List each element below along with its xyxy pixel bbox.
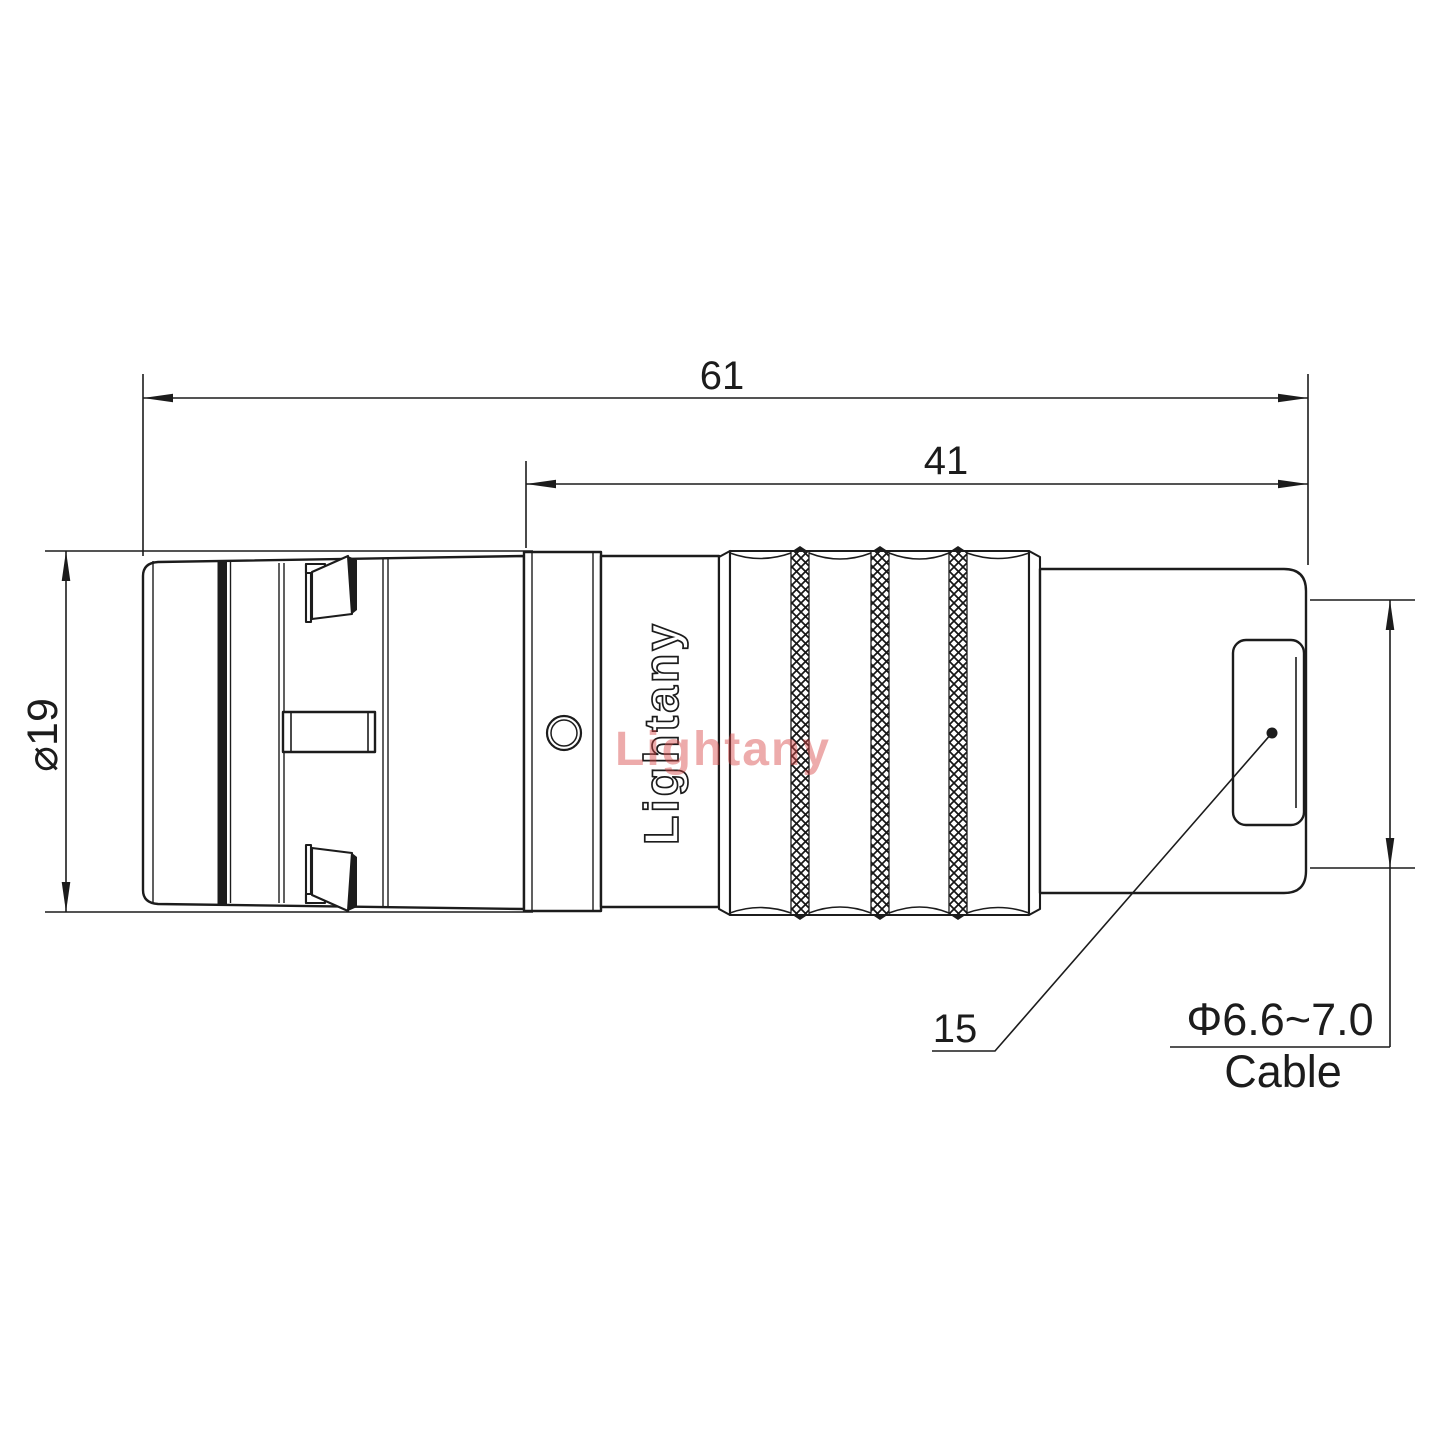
cable-range-value: Φ6.6~7.0 bbox=[1186, 994, 1373, 1045]
knurl-band-2 bbox=[871, 546, 889, 920]
cable-boot bbox=[1040, 569, 1306, 893]
dia19-arrow-bottom bbox=[62, 882, 71, 912]
knurl-flare-right bbox=[1029, 551, 1040, 915]
flange-hole-outer bbox=[547, 716, 581, 750]
cable-dim-arrow-top bbox=[1386, 600, 1395, 630]
connector-drawing-svg: Lightany 61 41 ⌀19 Φ6.6~7.0 Cable bbox=[0, 0, 1440, 1440]
dimension-body-length: 41 bbox=[526, 439, 1308, 548]
dim61-arrow-right bbox=[1278, 394, 1308, 403]
dim41-arrow-left bbox=[526, 480, 556, 489]
cable-dim-arrow-bottom bbox=[1386, 838, 1395, 868]
dim61-value: 61 bbox=[700, 354, 745, 398]
bottom-latch bbox=[306, 845, 357, 911]
dim61-arrow-left bbox=[143, 394, 173, 403]
cable-word-label: Cable bbox=[1224, 1046, 1342, 1097]
technical-drawing-canvas: Lightany 61 41 ⌀19 Φ6.6~7.0 Cable bbox=[0, 0, 1440, 1440]
dia19-value: ⌀19 bbox=[19, 698, 67, 772]
front-shell-gap-band bbox=[218, 562, 228, 904]
dimension-overall-length: 61 bbox=[143, 354, 1308, 565]
dim41-value: 41 bbox=[924, 439, 969, 483]
knurl-band-3 bbox=[949, 546, 967, 920]
dim41-arrow-right bbox=[1278, 480, 1308, 489]
top-latch bbox=[306, 556, 357, 622]
dia19-arrow-top bbox=[62, 551, 71, 581]
watermark-text: Lightany bbox=[615, 723, 831, 776]
key-block bbox=[283, 712, 375, 752]
item15-value: 15 bbox=[933, 1007, 978, 1051]
